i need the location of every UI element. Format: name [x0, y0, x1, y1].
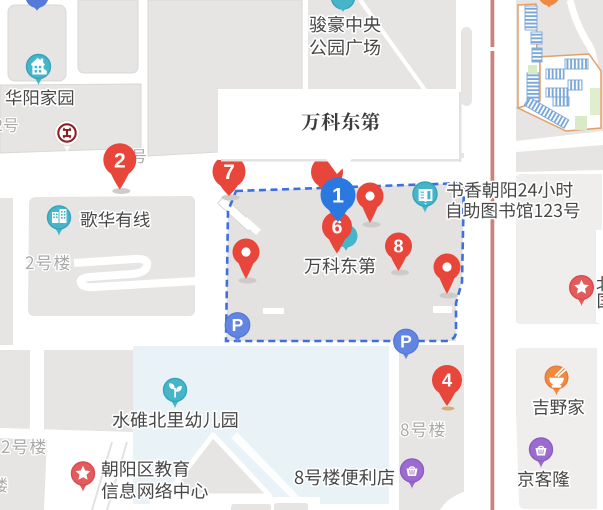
svg-text:P: P — [232, 315, 244, 335]
svg-text:8: 8 — [393, 236, 403, 256]
svg-text:7: 7 — [223, 161, 235, 184]
svg-text:1: 1 — [332, 184, 344, 208]
svg-text:P: P — [400, 332, 412, 352]
svg-text:4: 4 — [442, 370, 453, 391]
svg-text:2: 2 — [114, 149, 126, 172]
